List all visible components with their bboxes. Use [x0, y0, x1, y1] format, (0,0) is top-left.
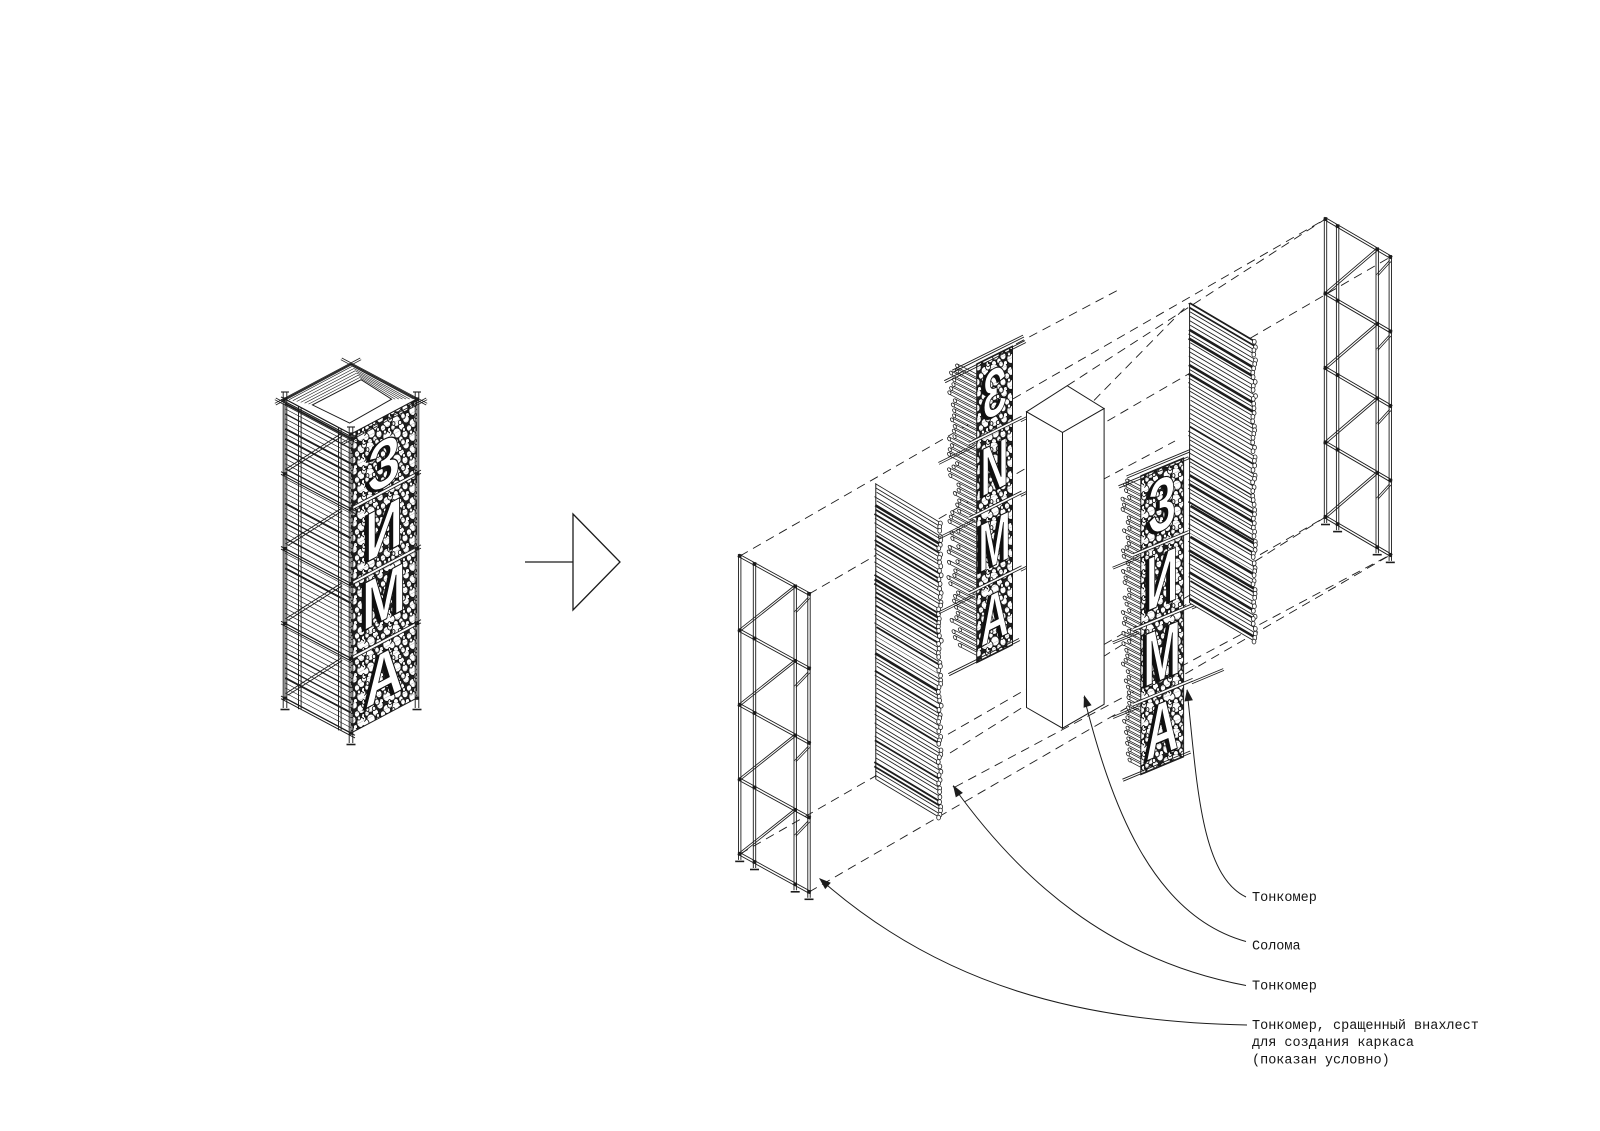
svg-text:Тонкомер: Тонкомер — [1252, 980, 1317, 995]
svg-text:для создания каркаса: для создания каркаса — [1252, 1036, 1414, 1051]
svg-text:Тонкомер, сращенный внахлест: Тонкомер, сращенный внахлест — [1252, 1019, 1479, 1034]
svg-text:Тонкомер: Тонкомер — [1252, 891, 1317, 906]
svg-text:Солома: Солома — [1252, 940, 1301, 955]
svg-text:(показан условно): (показан условно) — [1252, 1054, 1390, 1069]
